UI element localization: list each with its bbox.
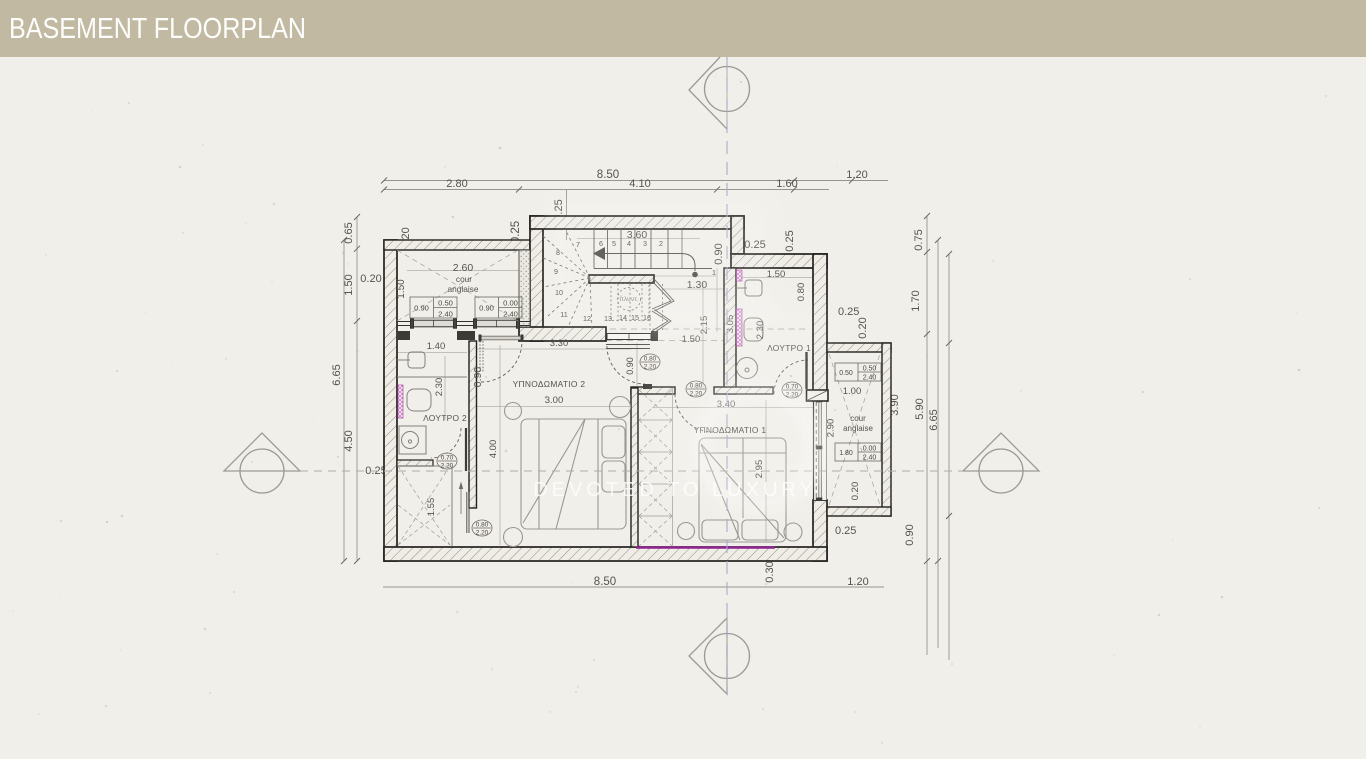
svg-text:0.20: 0.20 [360,273,381,285]
svg-text:0.80: 0.80 [476,521,489,528]
svg-text:DEVOTED TO LUXURY: DEVOTED TO LUXURY [533,479,817,501]
svg-text:anglaise: anglaise [448,284,479,294]
svg-text:0.25: 0.25 [835,525,856,537]
svg-text:0.50: 0.50 [839,370,853,377]
svg-text:8.50: 8.50 [597,169,619,181]
svg-text:4.00: 4.00 [488,440,499,459]
svg-text:8.50: 8.50 [594,576,616,588]
svg-text:0.90: 0.90 [904,524,916,545]
svg-text:0.25: 0.25 [784,230,796,251]
svg-text:1.70: 1.70 [910,290,922,311]
svg-text:0.00: 0.00 [503,299,518,308]
svg-text:cour: cour [456,274,472,284]
svg-text:3.00: 3.00 [545,395,564,406]
svg-text:1.40: 1.40 [427,341,446,352]
svg-text:6.65: 6.65 [331,364,343,385]
svg-text:1.80: 1.80 [839,450,853,457]
svg-text:anglaise: anglaise [843,424,873,433]
svg-text:0.00: 0.00 [863,446,877,453]
svg-text:2.80: 2.80 [446,178,467,190]
svg-text:4.50: 4.50 [343,430,355,451]
svg-text:0.90: 0.90 [479,304,494,313]
svg-text:3.30: 3.30 [550,338,569,349]
svg-text:6.65: 6.65 [928,409,940,430]
svg-text:0.30: 0.30 [764,561,776,582]
svg-text:2.40: 2.40 [863,375,877,382]
svg-text:0.65: 0.65 [343,222,355,243]
svg-text:5.90: 5.90 [914,398,926,419]
svg-text:cour: cour [850,414,866,423]
svg-text:0.20: 0.20 [850,482,861,501]
svg-text:1.20: 1.20 [847,576,868,588]
svg-text:0.70: 0.70 [441,454,454,461]
svg-text:BASEMENT FLOORPLAN: BASEMENT FLOORPLAN [9,13,306,45]
svg-text:2.30: 2.30 [434,378,445,397]
svg-text:1.50: 1.50 [396,279,407,299]
svg-text:1.20: 1.20 [846,169,867,181]
svg-text:2.40: 2.40 [438,310,453,319]
svg-text:0.90: 0.90 [414,304,429,313]
svg-text:0.90: 0.90 [472,367,484,388]
svg-text:1.60: 1.60 [776,178,797,190]
svg-text:0.50: 0.50 [863,366,877,373]
svg-text:1.50: 1.50 [343,274,355,295]
svg-text:2.20: 2.20 [441,463,454,470]
svg-text:0.90: 0.90 [625,357,635,375]
svg-text:4.10: 4.10 [629,178,650,190]
svg-text:1.55: 1.55 [426,498,437,517]
svg-text:2.40: 2.40 [863,455,877,462]
svg-text:ΛΟΥΤΡΟ 2: ΛΟΥΤΡΟ 2 [423,413,467,423]
svg-text:2.20: 2.20 [476,530,489,537]
svg-text:2.60: 2.60 [453,262,474,274]
svg-text:1.00: 1.00 [843,386,862,397]
svg-text:0.75: 0.75 [913,229,925,250]
svg-text:0.50: 0.50 [438,299,453,308]
svg-text:2.90: 2.90 [826,419,837,438]
svg-text:0.80: 0.80 [796,283,807,302]
svg-text:ΥΠΝΟΔΩΜΑΤΙΟ 2: ΥΠΝΟΔΩΜΑΤΙΟ 2 [513,379,586,389]
svg-text:2.40: 2.40 [503,310,518,319]
svg-text:0.20: 0.20 [857,317,869,338]
svg-text:0.25: 0.25 [838,306,859,318]
